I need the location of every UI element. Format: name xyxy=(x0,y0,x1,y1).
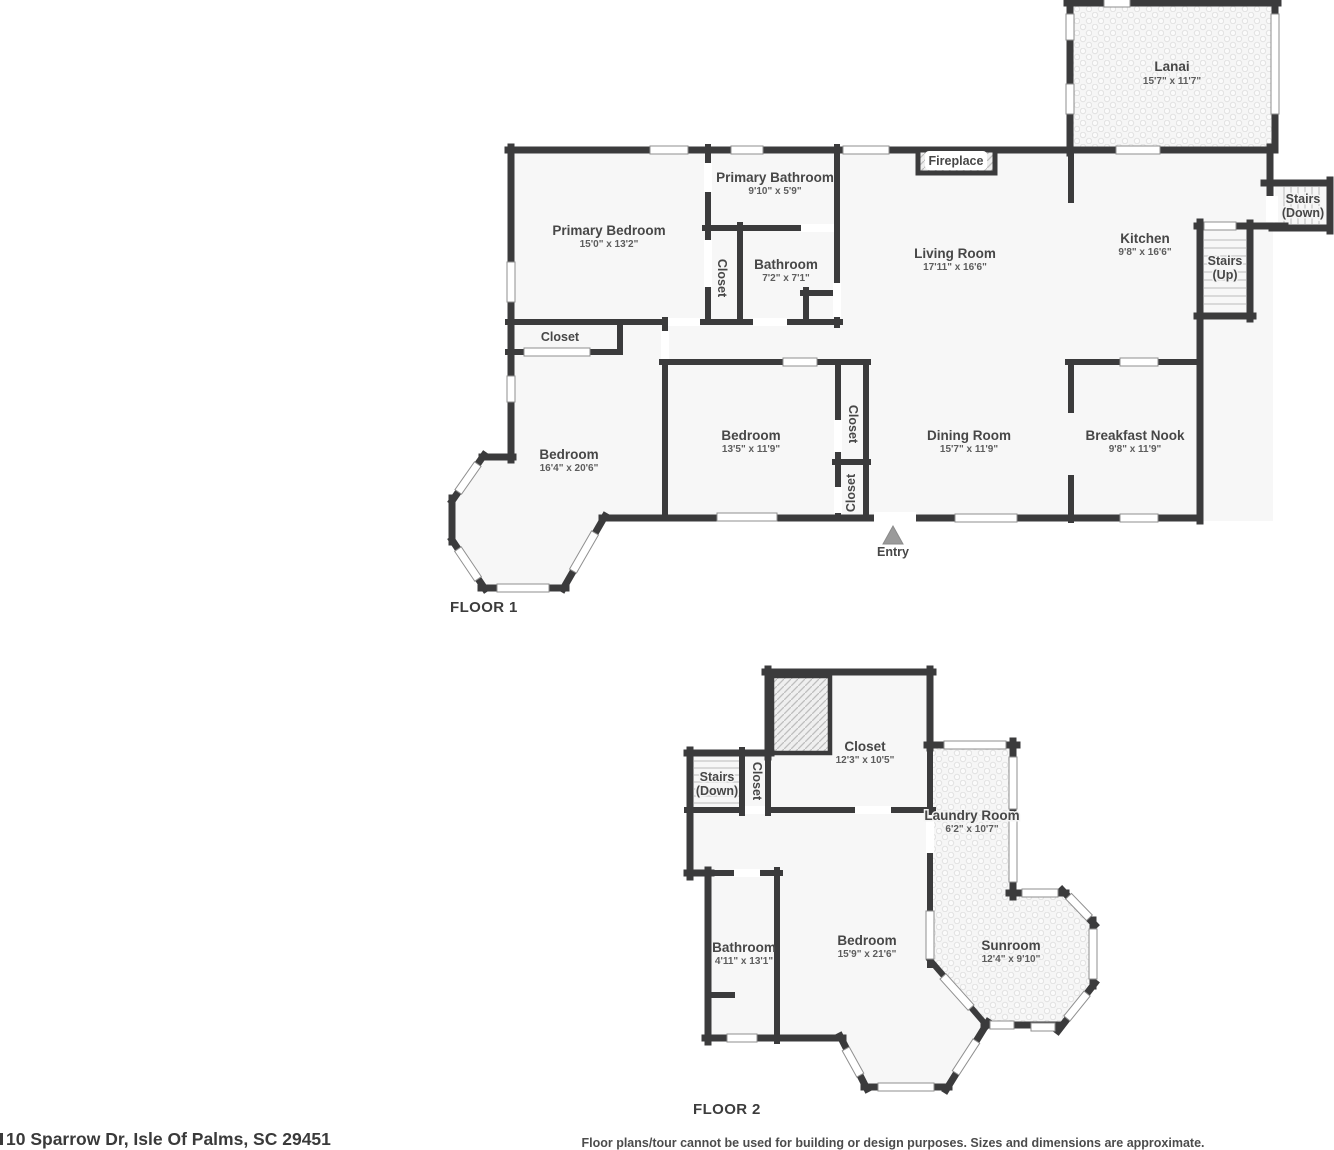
closet-label-upper: Closet xyxy=(846,405,860,444)
svg-text:4'11" x 13'1": 4'11" x 13'1" xyxy=(715,956,773,967)
svg-text:12'4" x 9'10": 12'4" x 9'10" xyxy=(982,954,1041,965)
room-label-living-room: Living Room 17'11" x 16'6" xyxy=(914,246,996,273)
svg-text:6'2" x 10'7": 6'2" x 10'7" xyxy=(945,824,998,835)
room-label-kitchen: Kitchen 9'8" x 16'6" xyxy=(1118,231,1171,258)
svg-text:Stairs: Stairs xyxy=(1208,254,1243,268)
entry-opening xyxy=(874,512,916,523)
closet-label-f2-vertical: Closet xyxy=(750,762,764,801)
floor1-title: FLOOR 1 xyxy=(450,599,518,616)
primary-closet-label: Closet xyxy=(715,259,729,298)
svg-text:(Up): (Up) xyxy=(1213,268,1238,282)
room-label-bathroom: Bathroom 7'2" x 7'1" xyxy=(754,257,818,284)
svg-text:(Down): (Down) xyxy=(1282,206,1324,220)
svg-text:12'3" x 10'5": 12'3" x 10'5" xyxy=(836,755,895,766)
floor2-plan: Closet 12'3" x 10'5" Stairs (Down) Close… xyxy=(687,669,1097,1118)
room-label-bathroom-f2: Bathroom 4'11" x 13'1" xyxy=(712,940,776,967)
fireplace-label: Fireplace xyxy=(929,154,984,168)
svg-text:7'2" x 7'1": 7'2" x 7'1" xyxy=(762,273,810,284)
room-label-bedroom-f2: Bedroom 15'9" x 21'6" xyxy=(837,933,896,960)
svg-text:Bedroom: Bedroom xyxy=(721,428,780,443)
svg-text:15'7" x 11'9": 15'7" x 11'9" xyxy=(940,444,998,455)
stairs-up-label: Stairs (Up) xyxy=(1208,254,1243,282)
room-label-bedroom-left: Bedroom 16'4" x 20'6" xyxy=(539,447,598,474)
stairs-down-label-floor1: Stairs (Down) xyxy=(1282,192,1324,220)
svg-text:Stairs: Stairs xyxy=(1286,192,1321,206)
floor-plan-drawing: Fireplace Lanai 15'7" x 11'7" Primary Ba… xyxy=(0,0,1334,1150)
svg-text:9'10" x 5'9": 9'10" x 5'9" xyxy=(748,186,801,197)
svg-text:Bedroom: Bedroom xyxy=(539,447,598,462)
svg-text:Bathroom: Bathroom xyxy=(712,940,776,955)
footer: 10 Sparrow Dr, Isle Of Palms, SC 29451 F… xyxy=(0,1129,1205,1150)
svg-text:15'9" x 21'6": 15'9" x 21'6" xyxy=(838,949,897,960)
svg-text:15'7" x 11'7": 15'7" x 11'7" xyxy=(1143,76,1201,87)
address-text: 10 Sparrow Dr, Isle Of Palms, SC 29451 xyxy=(6,1129,331,1149)
floor-plan-page: Fireplace Lanai 15'7" x 11'7" Primary Ba… xyxy=(0,0,1334,1150)
svg-text:Bathroom: Bathroom xyxy=(754,257,818,272)
floor1-plan: Fireplace Lanai 15'7" x 11'7" Primary Ba… xyxy=(450,0,1330,616)
svg-text:Kitchen: Kitchen xyxy=(1120,231,1170,246)
address-clipped-glyph xyxy=(0,1133,3,1145)
svg-text:Sunroom: Sunroom xyxy=(981,938,1040,953)
closet-label-lower: Closet xyxy=(844,473,858,512)
svg-text:9'8" x 11'9": 9'8" x 11'9" xyxy=(1109,444,1162,455)
hall-closet-label: Closet xyxy=(541,330,580,344)
closet-hatched-area xyxy=(772,676,830,753)
room-label-bedroom-middle: Bedroom 13'5" x 11'9" xyxy=(721,428,780,455)
svg-text:17'11" x 16'6": 17'11" x 16'6" xyxy=(923,262,987,273)
fireplace: Fireplace xyxy=(918,150,995,173)
svg-text:Primary Bedroom: Primary Bedroom xyxy=(552,223,665,238)
floor2-title: FLOOR 2 xyxy=(693,1101,761,1118)
svg-text:13'5" x 11'9": 13'5" x 11'9" xyxy=(722,444,780,455)
svg-text:9'8" x 16'6": 9'8" x 16'6" xyxy=(1118,247,1171,258)
disclaimer-text: Floor plans/tour cannot be used for buil… xyxy=(581,1136,1204,1150)
svg-text:Primary Bathroom: Primary Bathroom xyxy=(716,170,834,185)
svg-text:Bedroom: Bedroom xyxy=(837,933,896,948)
entry-label: Entry xyxy=(877,545,909,559)
svg-text:Dining Room: Dining Room xyxy=(927,428,1011,443)
svg-text:Lanai: Lanai xyxy=(1154,59,1189,74)
svg-text:(Down): (Down) xyxy=(696,784,738,798)
svg-text:16'4" x 20'6": 16'4" x 20'6" xyxy=(540,463,599,474)
stairs-down-label-floor2: Stairs (Down) xyxy=(696,770,738,798)
room-label-sunroom: Sunroom 12'4" x 9'10" xyxy=(981,938,1040,965)
svg-text:Closet: Closet xyxy=(844,739,886,754)
svg-text:Living Room: Living Room xyxy=(914,246,996,261)
entry-arrow-icon xyxy=(883,526,903,544)
svg-text:15'0" x 13'2": 15'0" x 13'2" xyxy=(580,239,639,250)
svg-text:Breakfast Nook: Breakfast Nook xyxy=(1085,428,1185,443)
svg-text:Laundry Room: Laundry Room xyxy=(924,808,1019,823)
svg-text:Stairs: Stairs xyxy=(700,770,735,784)
